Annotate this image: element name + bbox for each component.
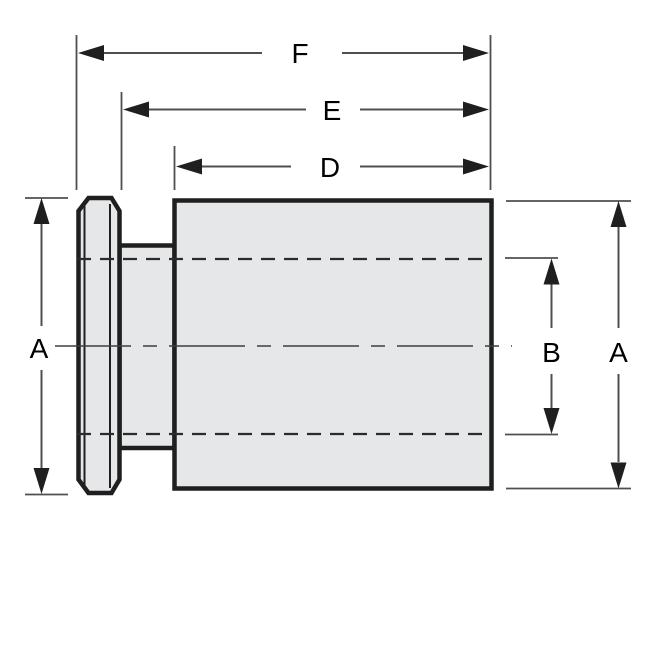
- dimension-label-f: F: [291, 38, 308, 69]
- dimension-a-right: A: [609, 201, 628, 489]
- arrowhead-left-icon: [78, 45, 104, 61]
- dimension-a-left: A: [30, 198, 50, 494]
- technical-drawing-canvas: F E D A: [0, 0, 670, 670]
- part-body: [175, 201, 492, 489]
- dimension-label-a-right: A: [609, 337, 628, 368]
- arrowhead-left-icon: [123, 102, 149, 118]
- dimension-label-d: D: [320, 152, 340, 183]
- arrowhead-right-icon: [463, 159, 489, 175]
- arrowhead-down-icon: [544, 408, 560, 434]
- dimension-b: B: [542, 259, 561, 435]
- arrowhead-right-icon: [463, 45, 489, 61]
- dimension-f: F: [78, 38, 489, 69]
- arrowhead-left-icon: [176, 159, 202, 175]
- drawing-page: F E D A: [0, 0, 670, 670]
- arrowhead-down-icon: [611, 463, 627, 489]
- dimension-label-a-left: A: [30, 333, 49, 364]
- dimension-d: D: [176, 152, 489, 183]
- dimension-e: E: [123, 95, 489, 126]
- arrowhead-down-icon: [34, 468, 50, 494]
- arrowhead-right-icon: [463, 102, 489, 118]
- dimension-label-e: E: [323, 95, 342, 126]
- arrowhead-up-icon: [611, 201, 627, 227]
- part-view: [55, 198, 512, 493]
- arrowhead-up-icon: [544, 259, 560, 285]
- dimension-label-b: B: [542, 337, 561, 368]
- arrowhead-up-icon: [34, 198, 50, 224]
